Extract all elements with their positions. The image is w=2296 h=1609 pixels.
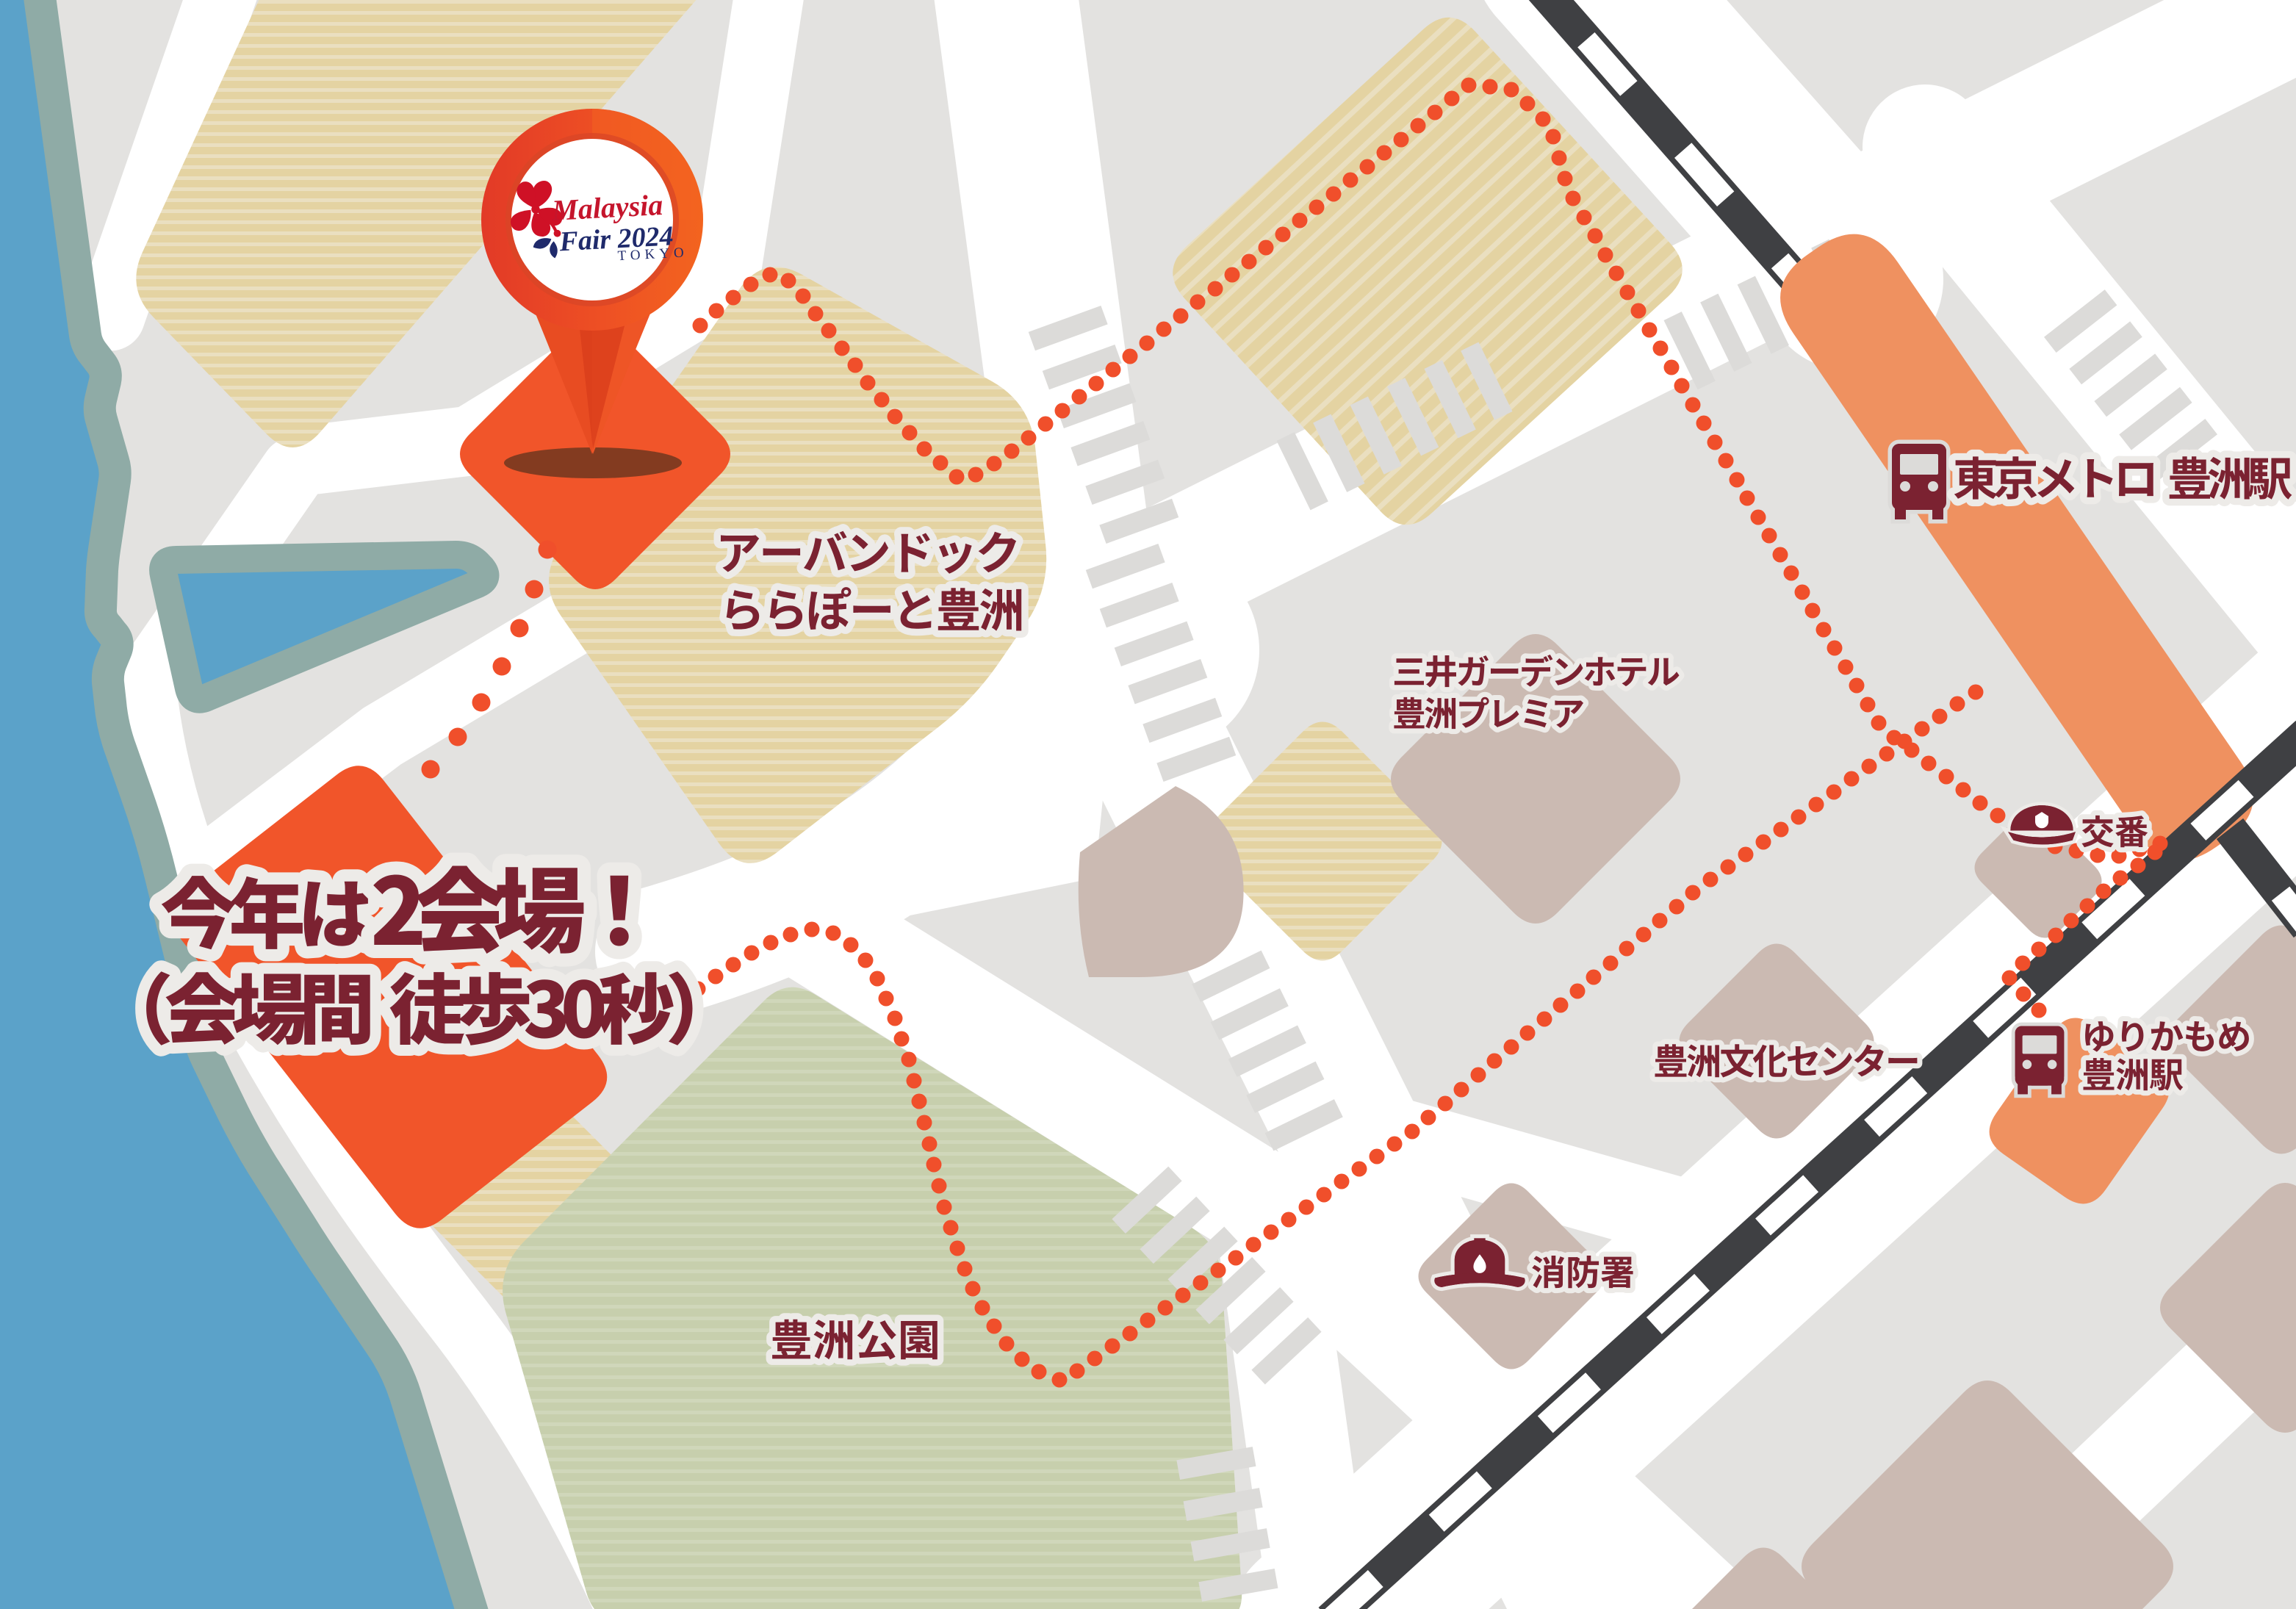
svg-text:Malaysia: Malaysia [550, 188, 663, 227]
